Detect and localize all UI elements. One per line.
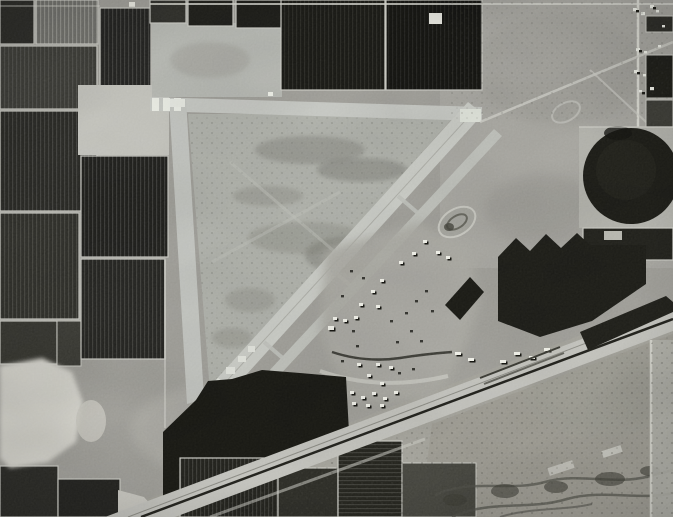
photo-texture bbox=[0, 0, 673, 517]
vignette bbox=[0, 0, 673, 517]
screenshot bbox=[0, 0, 673, 517]
aerial-photograph bbox=[0, 0, 673, 517]
